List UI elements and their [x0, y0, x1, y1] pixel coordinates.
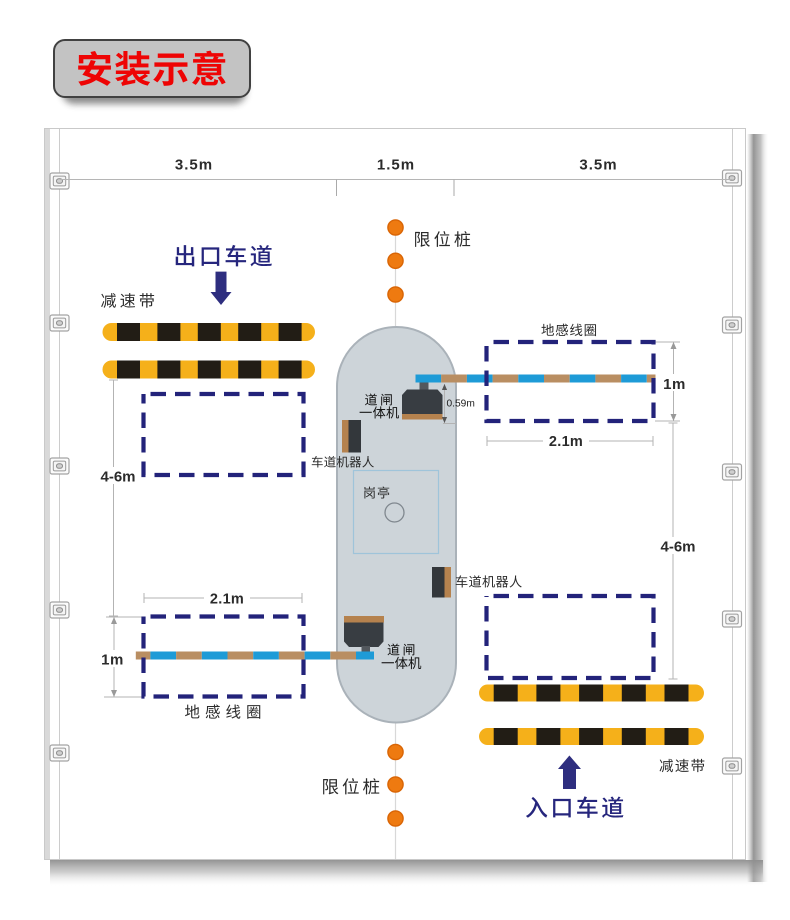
svg-text:1m: 1m: [101, 652, 124, 669]
svg-text:3.5m: 3.5m: [579, 157, 617, 174]
svg-text:1.5m: 1.5m: [377, 157, 415, 174]
svg-text:4-6m: 4-6m: [660, 539, 695, 556]
svg-text:1m: 1m: [663, 376, 686, 393]
svg-text:4-6m: 4-6m: [100, 469, 135, 486]
svg-text:2.1m: 2.1m: [549, 434, 583, 450]
svg-text:0.59m: 0.59m: [447, 399, 475, 410]
svg-text:2.1m: 2.1m: [210, 592, 244, 608]
svg-text:3.5m: 3.5m: [175, 157, 213, 174]
